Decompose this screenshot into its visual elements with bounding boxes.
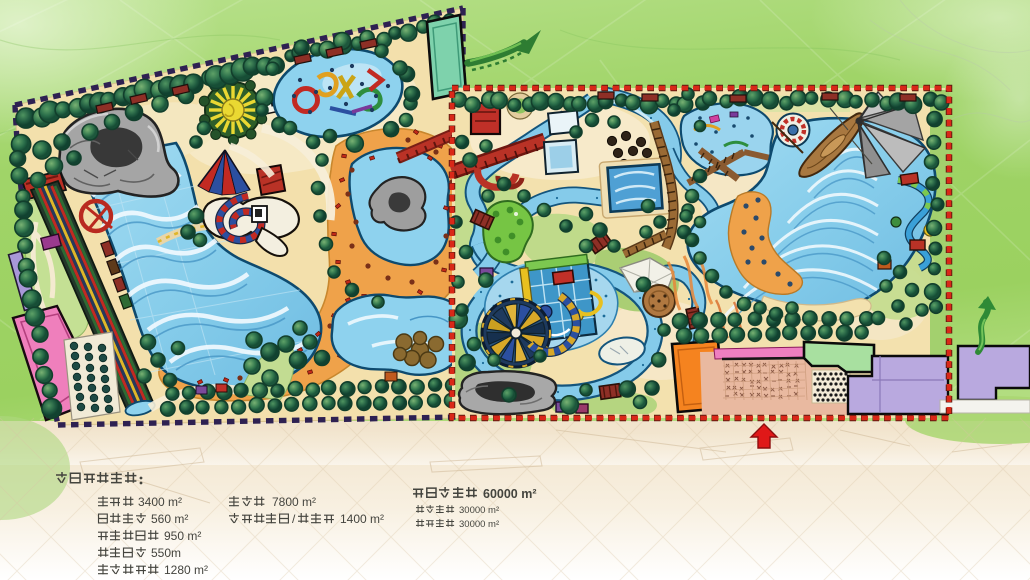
svg-text:950 m²: 950 m² [164,529,201,543]
svg-text:560 m²: 560 m² [151,512,188,526]
svg-text:550m: 550m [151,546,181,560]
svg-text:30000 m²: 30000 m² [459,505,499,516]
svg-text:3400 m²: 3400 m² [138,495,182,509]
svg-text:1280 m²: 1280 m² [164,563,208,577]
svg-text:7800 m²: 7800 m² [272,495,316,509]
svg-text:30000 m²: 30000 m² [459,519,499,530]
svg-text:1400 m²: 1400 m² [340,512,384,526]
svg-text:60000 m²: 60000 m² [483,487,537,501]
